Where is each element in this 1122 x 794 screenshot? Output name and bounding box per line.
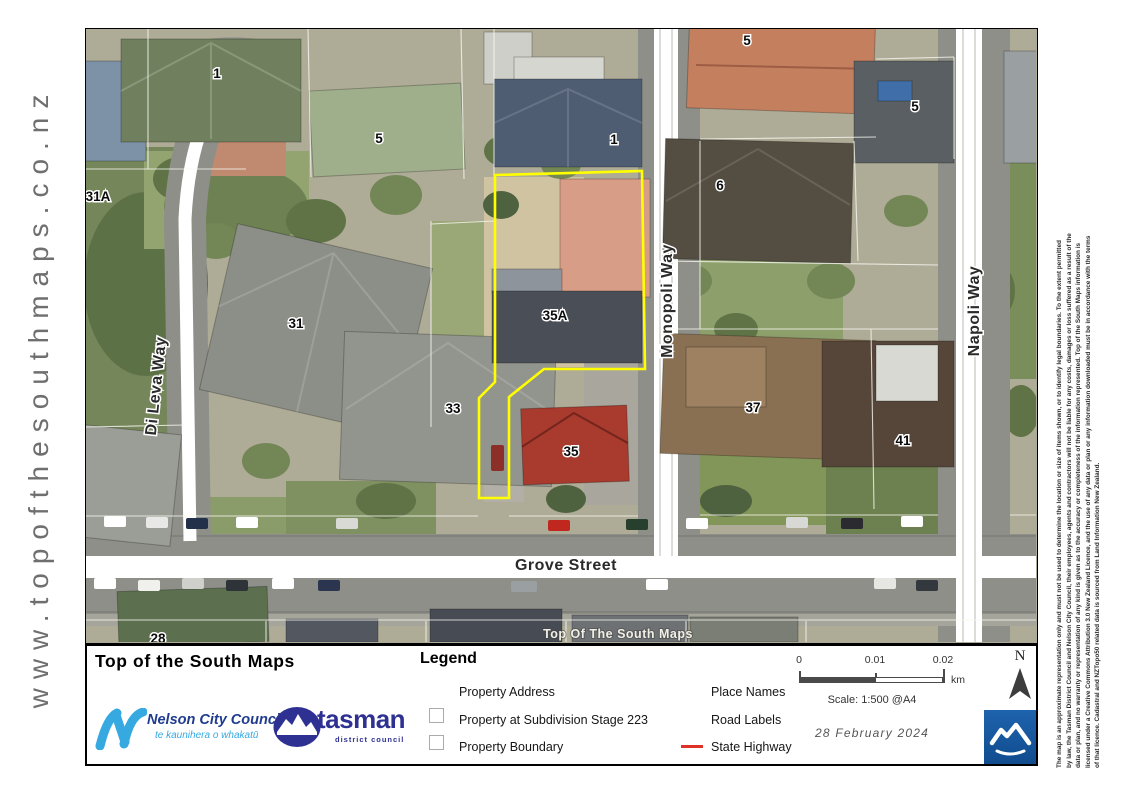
tasman-logo-subtitle: district council [335,735,404,744]
disclaimer-line: of that licence. Cadastral and NZTopo50 … [1093,26,1103,768]
pergola [514,57,604,81]
house-28 [117,586,269,642]
disclaimer-line: The map is an approximate representation… [1055,26,1065,768]
house-number-label: 33 [445,401,461,416]
house-number-label: 28 [150,631,166,642]
house-number-label: 31 [288,316,304,331]
house-number-label: 31A [86,189,111,204]
scalebar-filled-segment [799,677,875,683]
house-35a-salmon-roof [560,179,650,297]
legend-heading: Legend [420,650,477,668]
house-number-label: 5 [743,33,751,48]
map-watermark: Top Of The South Maps [543,627,693,641]
street-label-napoli-way: Napoli Way [966,266,983,357]
house-5-solar [854,61,954,163]
street-label-monopoli-way: Monopoli Way [659,244,676,358]
house-number-label: 37 [745,400,760,415]
house-5-west [309,83,465,177]
aerial-map-canvas[interactable]: 1 5 31A 1 5 5 6 31 33 35A 35 37 41 28 Gr… [86,29,1036,642]
scalebar-tick-001: 0.01 [865,654,885,666]
solar-panels [878,81,912,101]
scalebar-open-segment [875,677,943,683]
legend-swatch-subdivision [429,708,444,723]
house-35a-dark-roof [492,291,642,363]
scale-ratio-text: Scale: 1:500 @A4 [828,694,917,706]
house-number-label: 1 [213,66,221,81]
north-label: N [1015,648,1026,665]
house-6 [662,139,853,264]
page: { "site_url": "www.topofthesouthmaps.co.… [0,0,1122,794]
legend-panel: Top of the South Maps Legend Property Ad… [85,644,1038,766]
state-highway-line-symbol [681,745,703,748]
map-frame: 1 5 31A 1 5 5 6 31 33 35A 35 37 41 28 Gr… [85,28,1038,644]
mountain-logo-icon [984,710,1036,764]
disclaimer-line: data or plan, and no warranty or represe… [1074,26,1084,768]
tasman-mountains-icon [273,706,321,748]
house-number-label-highlight: 35A [543,308,568,323]
red-car-driveway [491,445,504,471]
north-arrow-icon [1007,666,1033,702]
house-number-label: 35 [563,444,579,459]
scalebar-tick-002: 0.02 [933,654,953,666]
nelson-city-council-logo: Nelson City Council te kaunihera o whaka… [95,708,270,756]
disclaimer-text: The map is an approximate representation… [1055,26,1105,768]
house-number-label: 6 [716,178,724,193]
nelson-n-swoosh-icon [95,708,147,750]
house-number-label: 41 [895,433,911,448]
legend-item-property-boundary: Property Boundary [459,740,563,754]
legend-item-road-labels: Road Labels [711,713,781,727]
scalebar-unit: km [951,674,965,686]
legend-item-place-names: Place Names [711,685,785,699]
panel-title: Top of the South Maps [95,651,295,672]
house-number-label: 5 [375,131,383,146]
legend-item-property-address: Property Address [459,685,555,699]
site-url-vertical-text: www.topofthesouthmaps.co.nz [23,12,67,782]
north-indicator: N [1005,648,1035,708]
red-car [548,520,570,531]
top-of-south-maps-tile [984,710,1036,764]
street-label-grove-street: Grove Street [515,557,617,574]
legend-item-subdivision-stage: Property at Subdivision Stage 223 [459,713,648,727]
house-number-label: 1 [610,132,618,147]
map-date: 28 February 2024 [815,726,929,740]
scalebar-tick-0: 0 [796,654,802,666]
house-number-label: 5 [911,99,919,114]
house-5-orange [686,29,875,114]
tasman-district-council-logo: tasman district council [273,702,423,758]
legend-item-state-highway: State Highway [711,740,792,754]
legend-swatch-property-boundary [429,735,444,750]
disclaimer-line: by law, the Tasman District Council and … [1065,26,1075,768]
nelson-logo-name: Nelson City Council [147,712,284,728]
nelson-logo-subtitle: te kaunihera o whakatū [155,730,258,741]
tasman-logo-name: tasman [317,704,405,735]
scalebar-tick-mark [943,669,945,683]
disclaimer-line: licensed under a Creative Commons Attrib… [1084,26,1094,768]
